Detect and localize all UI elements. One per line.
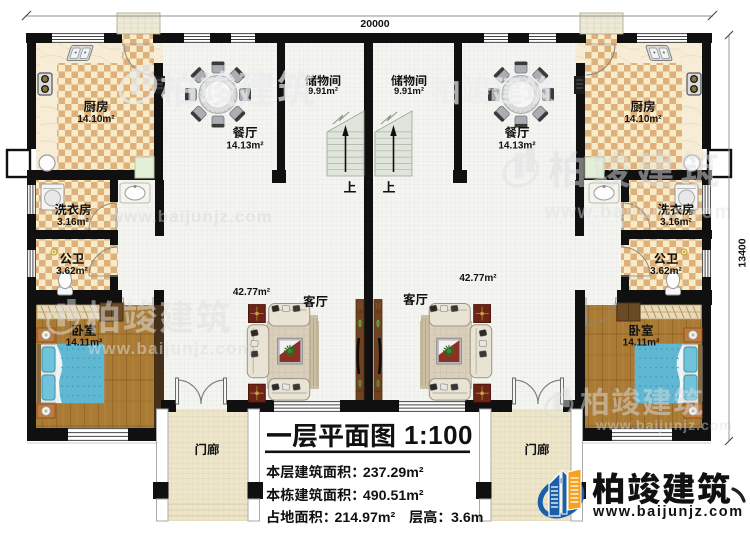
svg-text:3.16m²: 3.16m² [57, 217, 89, 228]
svg-text:3.62m²: 3.62m² [650, 266, 682, 277]
svg-text:www.baijunjz.com: www.baijunjz.com [87, 339, 254, 358]
svg-text:www.baijunjz.com: www.baijunjz.com [544, 202, 733, 223]
svg-text:3.62m²: 3.62m² [56, 266, 88, 277]
svg-text:9.91m²: 9.91m² [394, 86, 424, 97]
svg-text:214.97m²: 214.97m² [335, 510, 396, 526]
svg-text:1:100: 1:100 [404, 420, 473, 450]
svg-text:14.10m²: 14.10m² [624, 114, 662, 125]
svg-text:www.baijunjz.com: www.baijunjz.com [109, 207, 273, 226]
svg-text:14.10m²: 14.10m² [77, 114, 115, 125]
svg-text:237.29m²: 237.29m² [363, 465, 424, 481]
svg-text:14.11m²: 14.11m² [623, 338, 660, 349]
svg-text:9.91m²: 9.91m² [308, 86, 338, 97]
svg-text:3.6m: 3.6m [451, 510, 483, 526]
svg-text:42.77m²: 42.77m² [233, 287, 271, 298]
svg-text:www.baijunjz.com: www.baijunjz.com [595, 417, 733, 433]
svg-text:20000: 20000 [360, 18, 389, 30]
svg-text:490.51m²: 490.51m² [363, 488, 424, 504]
svg-text:13400: 13400 [737, 238, 749, 267]
svg-text:www.baijunjz.com: www.baijunjz.com [592, 504, 744, 520]
svg-text:14.13m²: 14.13m² [226, 141, 264, 152]
svg-text:42.77m²: 42.77m² [459, 273, 497, 284]
